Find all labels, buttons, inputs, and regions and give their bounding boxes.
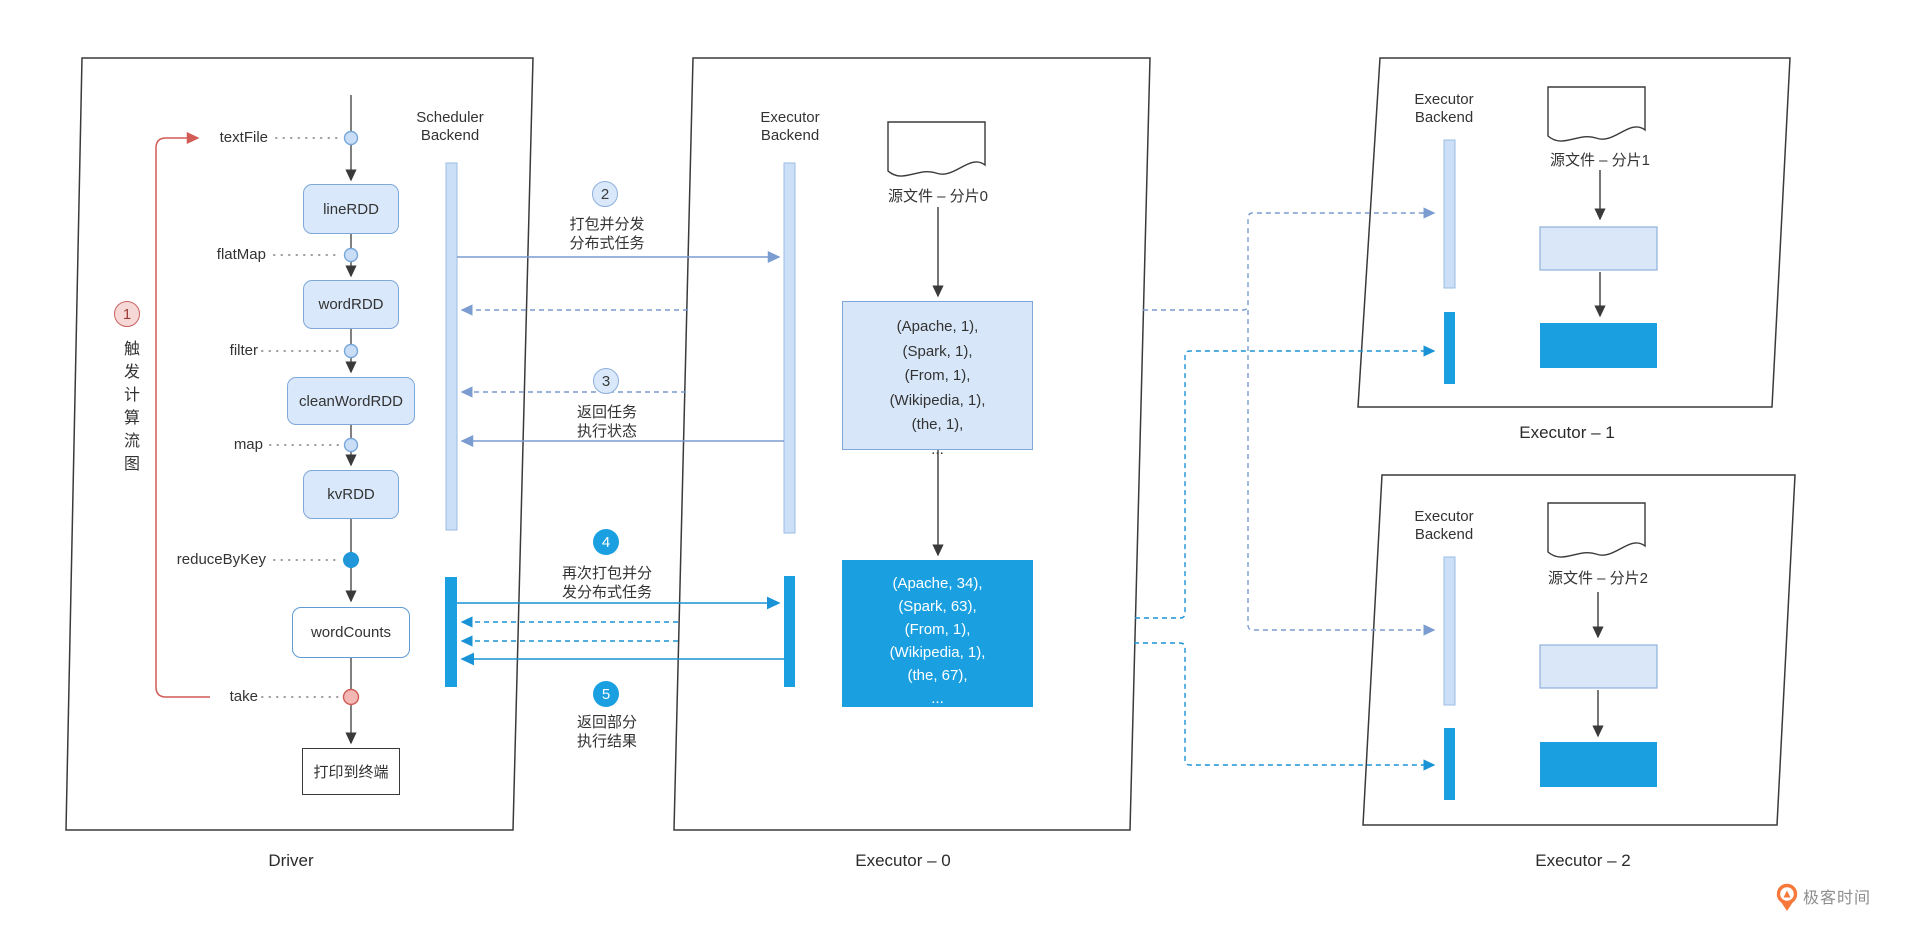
executor0-panel-label: Executor – 0	[803, 851, 1003, 871]
operator-label-textfile: textFile	[168, 129, 268, 146]
spark-architecture-diagram: textFile flatMap filter map reduceByKey …	[0, 0, 1920, 952]
step3-caption-line1: 返回任务	[527, 403, 687, 422]
rdd-box-kvrdd: kvRDD	[303, 470, 399, 519]
step2-caption-line1: 打包并分发	[527, 215, 687, 234]
step2-caption-line2: 分布式任务	[527, 234, 687, 253]
operator-label-take: take	[158, 688, 258, 705]
reduced-tuple-0: (Apache, 34),	[842, 572, 1033, 595]
operator-label-map: map	[163, 436, 263, 453]
reduced-tuple-3: (Wikipedia, 1),	[842, 641, 1033, 664]
rdd-label-kvrdd: kvRDD	[327, 486, 375, 503]
step1-caption: 触发计算流图	[117, 340, 141, 500]
rdd-box-linerdd: lineRDD	[303, 184, 399, 234]
terminal-box: 打印到终端	[302, 748, 400, 795]
executor0-backend-dark-bar	[784, 576, 795, 687]
executor2-backend-light-bar	[1444, 557, 1455, 705]
rdd-label-cleanwordrdd: cleanWordRDD	[299, 393, 403, 410]
rdd-box-wordrdd: wordRDD	[303, 280, 399, 329]
scheduler-backend-line2: Backend	[395, 127, 505, 145]
executor2-backend-dark-bar	[1444, 728, 1455, 800]
operator-label-reducebykey: reduceByKey	[166, 551, 266, 568]
step2-caption: 打包并分发 分布式任务	[527, 215, 687, 253]
executor1-backend-line1: Executor	[1389, 91, 1499, 109]
scheduler-backend-light-bar	[446, 163, 457, 530]
executor0-backend-light-bar	[784, 163, 795, 533]
map-tuple-1: (Spark, 1),	[843, 340, 1032, 365]
diagram-lines-layer	[0, 0, 1920, 952]
take-node	[344, 690, 359, 705]
step4-badge: 4	[593, 529, 619, 555]
executor2-backend-line1: Executor	[1389, 508, 1499, 526]
step5-caption-line2: 执行结果	[527, 732, 687, 751]
step4-caption: 再次打包并分 发分布式任务	[527, 564, 687, 602]
executor2-backend-label: Executor Backend	[1389, 508, 1499, 544]
reduced-tuple-1: (Spark, 63),	[842, 595, 1033, 618]
step1-badge: 1	[114, 301, 140, 327]
map-tuple-0: (Apache, 1),	[843, 315, 1032, 340]
executor0-reduced-tuples-box: (Apache, 34), (Spark, 63), (From, 1), (W…	[842, 560, 1033, 707]
reduced-tuple-4: (the, 67),	[842, 664, 1033, 687]
executor2-backend-line2: Backend	[1389, 526, 1499, 544]
executor0-backend-line1: Executor	[735, 109, 845, 127]
reduced-tuple-2: (From, 1),	[842, 618, 1033, 641]
executor1-panel-label: Executor – 1	[1467, 423, 1667, 443]
executor2-reduce-stage-rect	[1540, 742, 1657, 787]
executor2-map-stage-rect	[1540, 645, 1657, 688]
flatmap-node	[345, 249, 358, 262]
step2-badge: 2	[592, 181, 618, 207]
scheduler-backend-label: Scheduler Backend	[395, 109, 505, 145]
executor0-backend-label: Executor Backend	[735, 109, 845, 145]
executor0-source-label: 源文件 – 分片0	[838, 185, 1038, 206]
map-tuple-2: (From, 1),	[843, 364, 1032, 389]
operator-label-filter: filter	[158, 342, 258, 359]
rdd-label-linerdd: lineRDD	[323, 201, 379, 218]
geekbang-logo-icon	[1779, 886, 1796, 912]
rdd-box-wordcounts: wordCounts	[292, 607, 410, 658]
executor0-backend-line2: Backend	[735, 127, 845, 145]
executor1-map-stage-rect	[1540, 227, 1657, 270]
step4-caption-line1: 再次打包并分	[527, 564, 687, 583]
step4-caption-line2: 发分布式任务	[527, 583, 687, 602]
step3-badge: 3	[593, 368, 619, 394]
rdd-label-wordcounts: wordCounts	[311, 624, 391, 641]
rdd-label-wordrdd: wordRDD	[318, 296, 383, 313]
filter-node	[345, 345, 358, 358]
scheduler-backend-dark-bar	[445, 577, 457, 687]
executor1-backend-light-bar	[1444, 140, 1455, 288]
reduced-tuple-5: ...	[842, 687, 1033, 710]
executor1-backend-label: Executor Backend	[1389, 91, 1499, 127]
textfile-node	[345, 132, 358, 145]
map-tuple-5: ...	[843, 438, 1032, 463]
step5-badge: 5	[593, 681, 619, 707]
executor1-source-label: 源文件 – 分片1	[1500, 149, 1700, 170]
executor0-map-tuples-box: (Apache, 1), (Spark, 1), (From, 1), (Wik…	[842, 301, 1033, 450]
terminal-label: 打印到终端	[313, 761, 388, 782]
driver-panel-label: Driver	[191, 851, 391, 871]
geekbang-watermark-text: 极客时间	[1803, 884, 1871, 908]
step3-caption-line2: 执行状态	[527, 422, 687, 441]
map-tuple-4: (the, 1),	[843, 413, 1032, 438]
executor1-backend-line2: Backend	[1389, 109, 1499, 127]
step5-caption-line1: 返回部分	[527, 713, 687, 732]
executor2-panel-label: Executor – 2	[1483, 851, 1683, 871]
reducebykey-node	[344, 553, 359, 568]
rdd-box-cleanwordrdd: cleanWordRDD	[287, 377, 415, 425]
scheduler-backend-line1: Scheduler	[395, 109, 505, 127]
executor2-source-label: 源文件 – 分片2	[1498, 567, 1698, 588]
executor1-reduce-stage-rect	[1540, 323, 1657, 368]
step3-caption: 返回任务 执行状态	[527, 403, 687, 441]
executor1-backend-dark-bar	[1444, 312, 1455, 384]
map-tuple-3: (Wikipedia, 1),	[843, 389, 1032, 414]
step5-caption: 返回部分 执行结果	[527, 713, 687, 751]
operator-label-flatmap: flatMap	[166, 246, 266, 263]
map-node	[345, 439, 358, 452]
